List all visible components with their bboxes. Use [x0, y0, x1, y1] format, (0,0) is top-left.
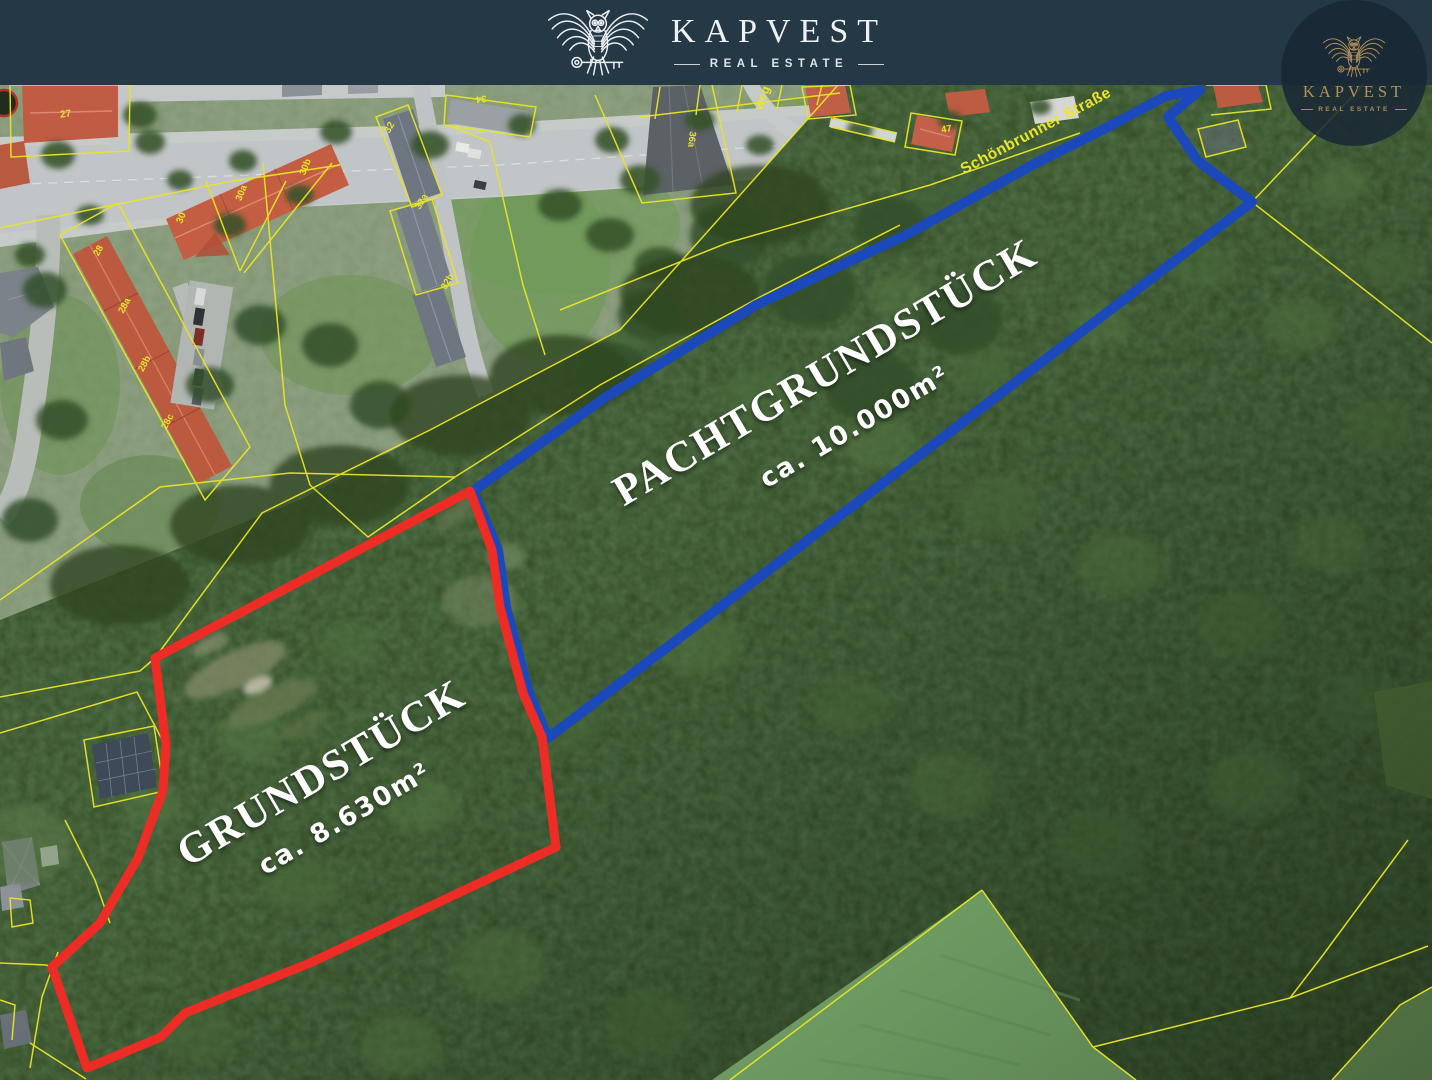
parcel-label: 34: [475, 92, 487, 104]
page: KAPVEST REAL ESTATE: [0, 0, 1432, 1080]
owl-key-logo-icon: [545, 6, 651, 80]
brand-wordmark: KAPVEST: [671, 15, 887, 49]
watermark-tagline: REAL ESTATE: [1301, 106, 1407, 113]
watermark-badge: KAPVEST REAL ESTATE: [1281, 0, 1427, 146]
parcel-label: 47: [940, 123, 952, 136]
watermark-rule-left: [1301, 109, 1313, 110]
aerial-map: 27 28 28a 28b 28c 30 30a 30b 32 32a 32b …: [0, 85, 1432, 1080]
tagline-text: REAL ESTATE: [710, 58, 848, 70]
parcel-label: 27: [59, 108, 72, 121]
watermark-wordmark: KAPVEST: [1303, 82, 1405, 102]
watermark-tagline-text: REAL ESTATE: [1318, 106, 1390, 113]
tagline-rule-right: [858, 64, 884, 65]
map-wrapper: 27 28 28a 28b 28c 30 30a 30b 32 32a 32b …: [0, 85, 1432, 1080]
brand-block: KAPVEST REAL ESTATE: [671, 15, 887, 70]
tagline-rule-left: [674, 64, 700, 65]
watermark-owl-icon: [1321, 34, 1387, 80]
watermark-rule-right: [1395, 109, 1407, 110]
parcel-label: 36a: [685, 131, 698, 149]
brand-tagline: REAL ESTATE: [674, 58, 884, 70]
header: KAPVEST REAL ESTATE: [0, 0, 1432, 85]
